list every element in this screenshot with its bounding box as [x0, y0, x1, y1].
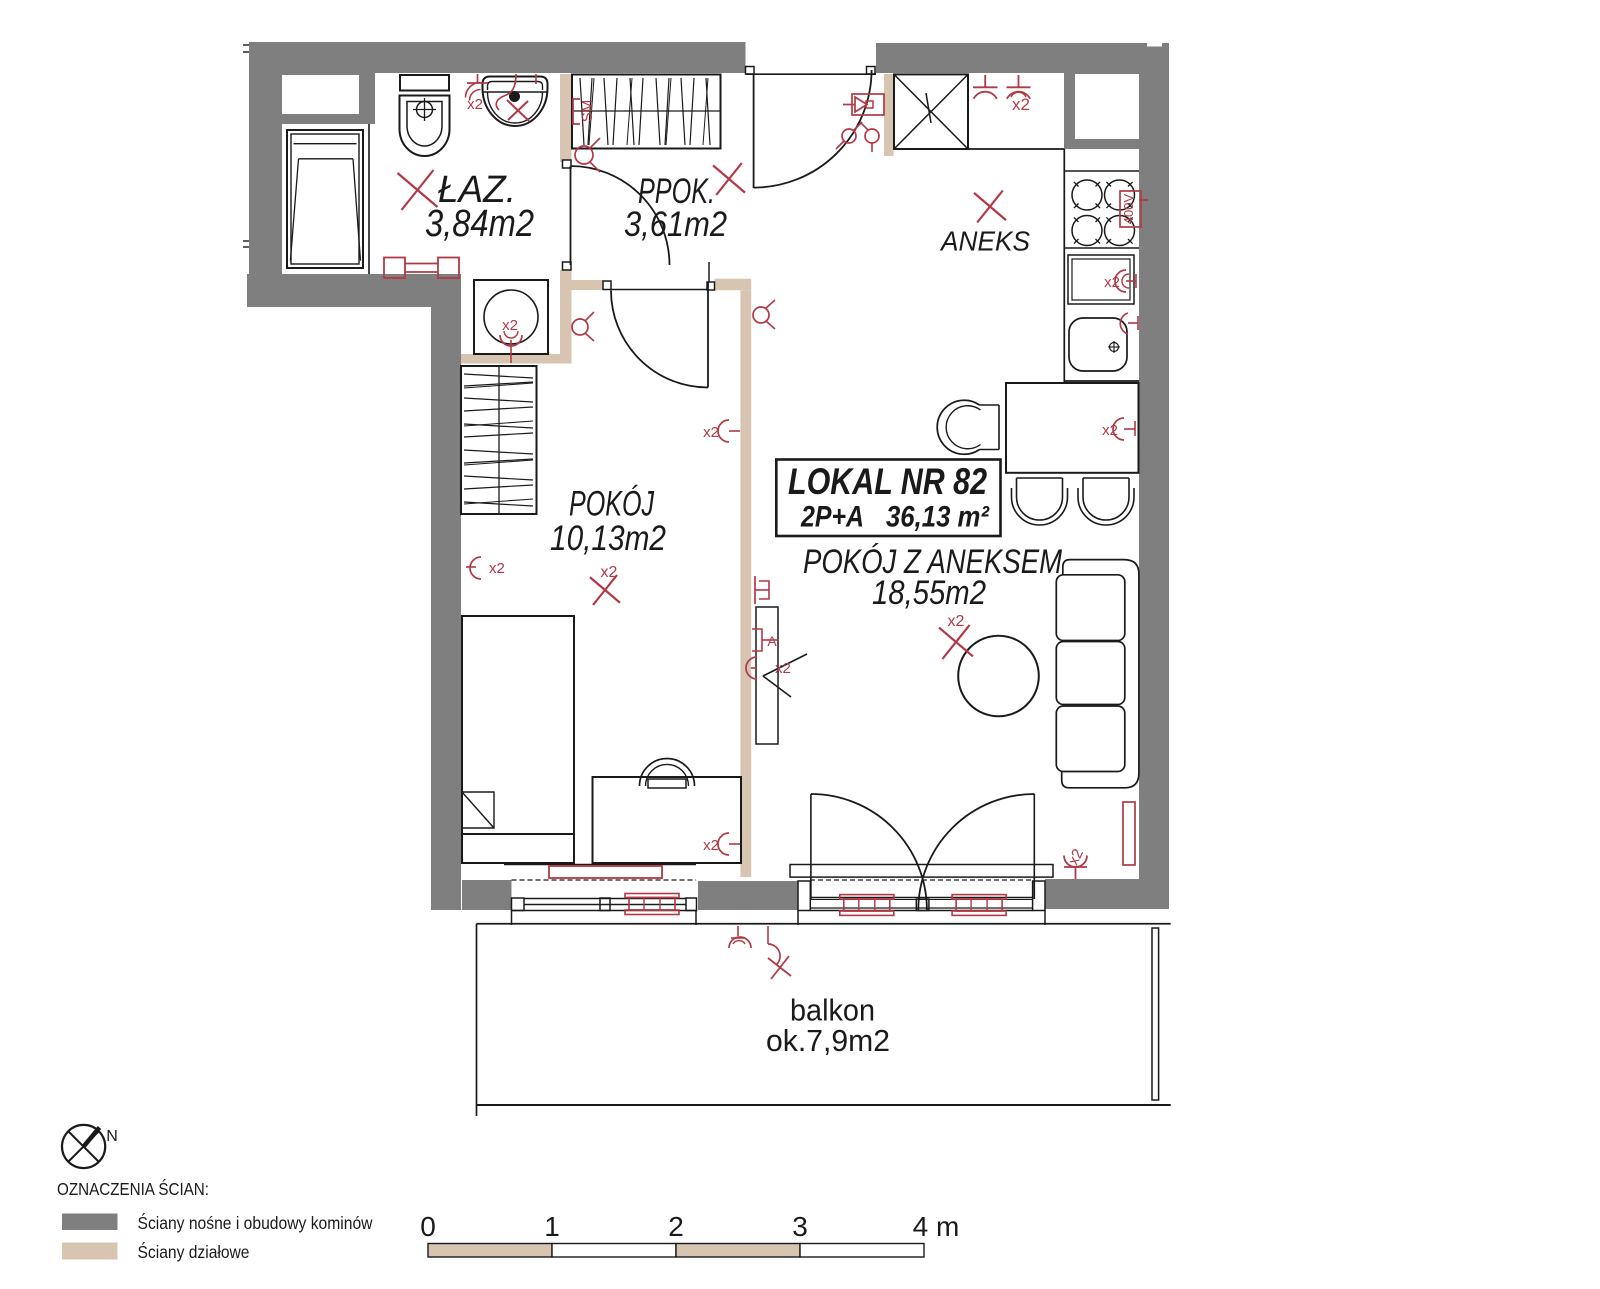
svg-text:N: N [106, 1128, 118, 1145]
svg-text:LOKAL NR 82: LOKAL NR 82 [788, 461, 987, 502]
svg-text:x2: x2 [1104, 274, 1120, 291]
svg-text:x2: x2 [948, 613, 965, 630]
svg-text:OZNACZENIA ŚCIAN:: OZNACZENIA ŚCIAN: [57, 1178, 209, 1199]
svg-text:2: 2 [668, 1211, 684, 1242]
svg-text:A: A [767, 633, 777, 649]
svg-text:1: 1 [544, 1211, 560, 1242]
svg-text:400V: 400V [1121, 193, 1136, 224]
svg-text:3,84m2: 3,84m2 [425, 203, 534, 245]
svg-text:x2: x2 [601, 564, 618, 581]
svg-text:x2: x2 [703, 837, 719, 854]
svg-text:x2: x2 [467, 96, 483, 113]
svg-text:x2: x2 [489, 560, 505, 577]
svg-text:ANEKS: ANEKS [939, 226, 1030, 257]
svg-text:x2: x2 [1102, 422, 1118, 439]
svg-text:ok.7,9m2: ok.7,9m2 [766, 1023, 890, 1058]
svg-text:Ściany działowe: Ściany działowe [138, 1241, 250, 1262]
svg-text:SM: SM [579, 100, 596, 123]
svg-text:POKÓJ: POKÓJ [569, 485, 654, 524]
svg-text:36,13 m²: 36,13 m² [886, 501, 990, 534]
svg-text:2P+A: 2P+A [800, 501, 864, 534]
svg-text:4 m: 4 m [913, 1211, 960, 1242]
svg-text:x2: x2 [703, 424, 719, 441]
svg-text:3,61m2: 3,61m2 [624, 205, 727, 244]
svg-text:x2: x2 [775, 660, 791, 677]
svg-text:10,13m2: 10,13m2 [550, 519, 666, 558]
svg-text:18,55m2: 18,55m2 [872, 574, 986, 612]
svg-text:3: 3 [792, 1211, 808, 1242]
svg-text:0: 0 [420, 1211, 436, 1242]
svg-text:Ściany nośne i obudowy kominów: Ściany nośne i obudowy kominów [138, 1212, 373, 1233]
svg-text:x2: x2 [1012, 95, 1030, 114]
